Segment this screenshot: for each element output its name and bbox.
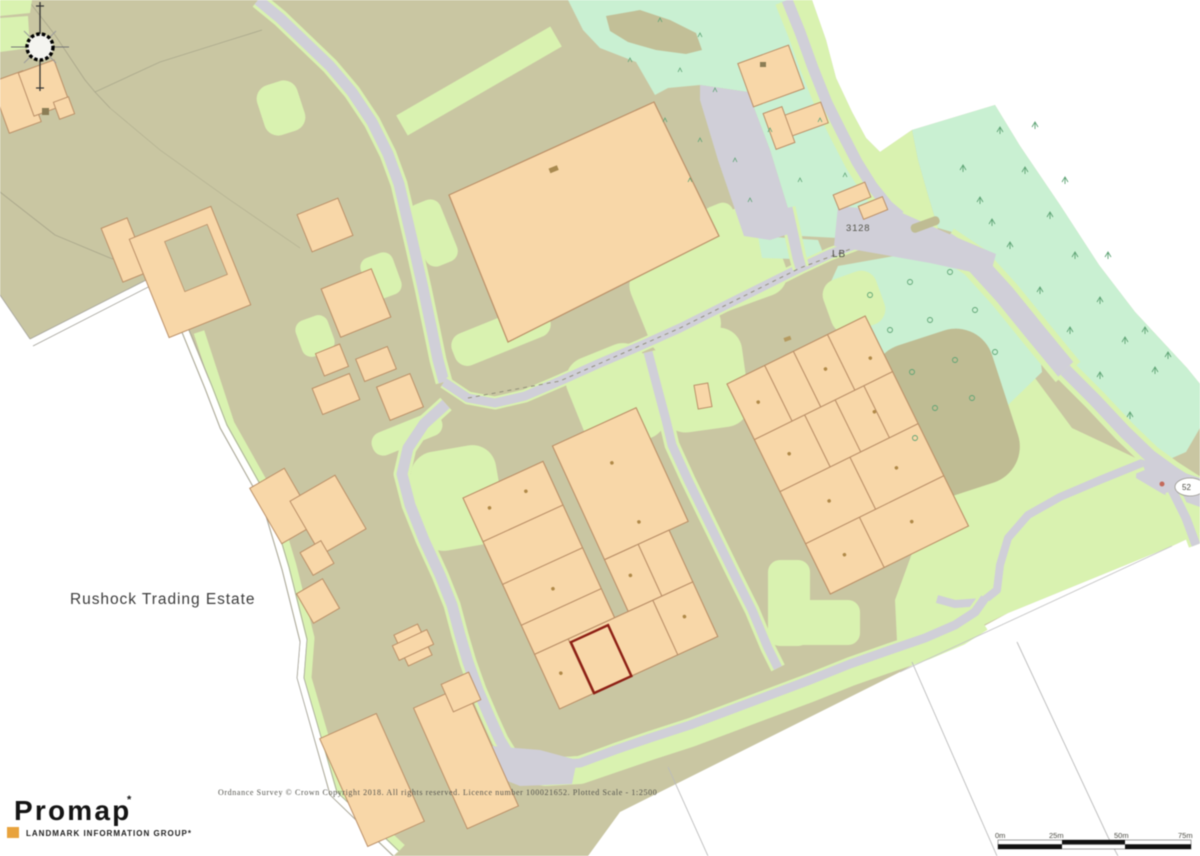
svg-text:*: * <box>127 794 132 806</box>
svg-text:52: 52 <box>1182 483 1191 492</box>
svg-text:LB: LB <box>832 249 846 260</box>
svg-text:Rushock Trading Estate: Rushock Trading Estate <box>70 591 255 608</box>
svg-text:3128: 3128 <box>846 223 870 234</box>
svg-text:50m: 50m <box>1114 831 1129 840</box>
svg-text:0m: 0m <box>995 831 1005 840</box>
svg-text:75m: 75m <box>1178 831 1193 840</box>
svg-text:Ordnance Survey © Crown Copyri: Ordnance Survey © Crown Copyright 2018. … <box>218 788 657 797</box>
svg-text:Promap: Promap <box>14 795 131 826</box>
svg-text:LANDMARK INFORMATION GROUP*: LANDMARK INFORMATION GROUP* <box>26 829 192 838</box>
svg-text:25m: 25m <box>1049 831 1064 840</box>
